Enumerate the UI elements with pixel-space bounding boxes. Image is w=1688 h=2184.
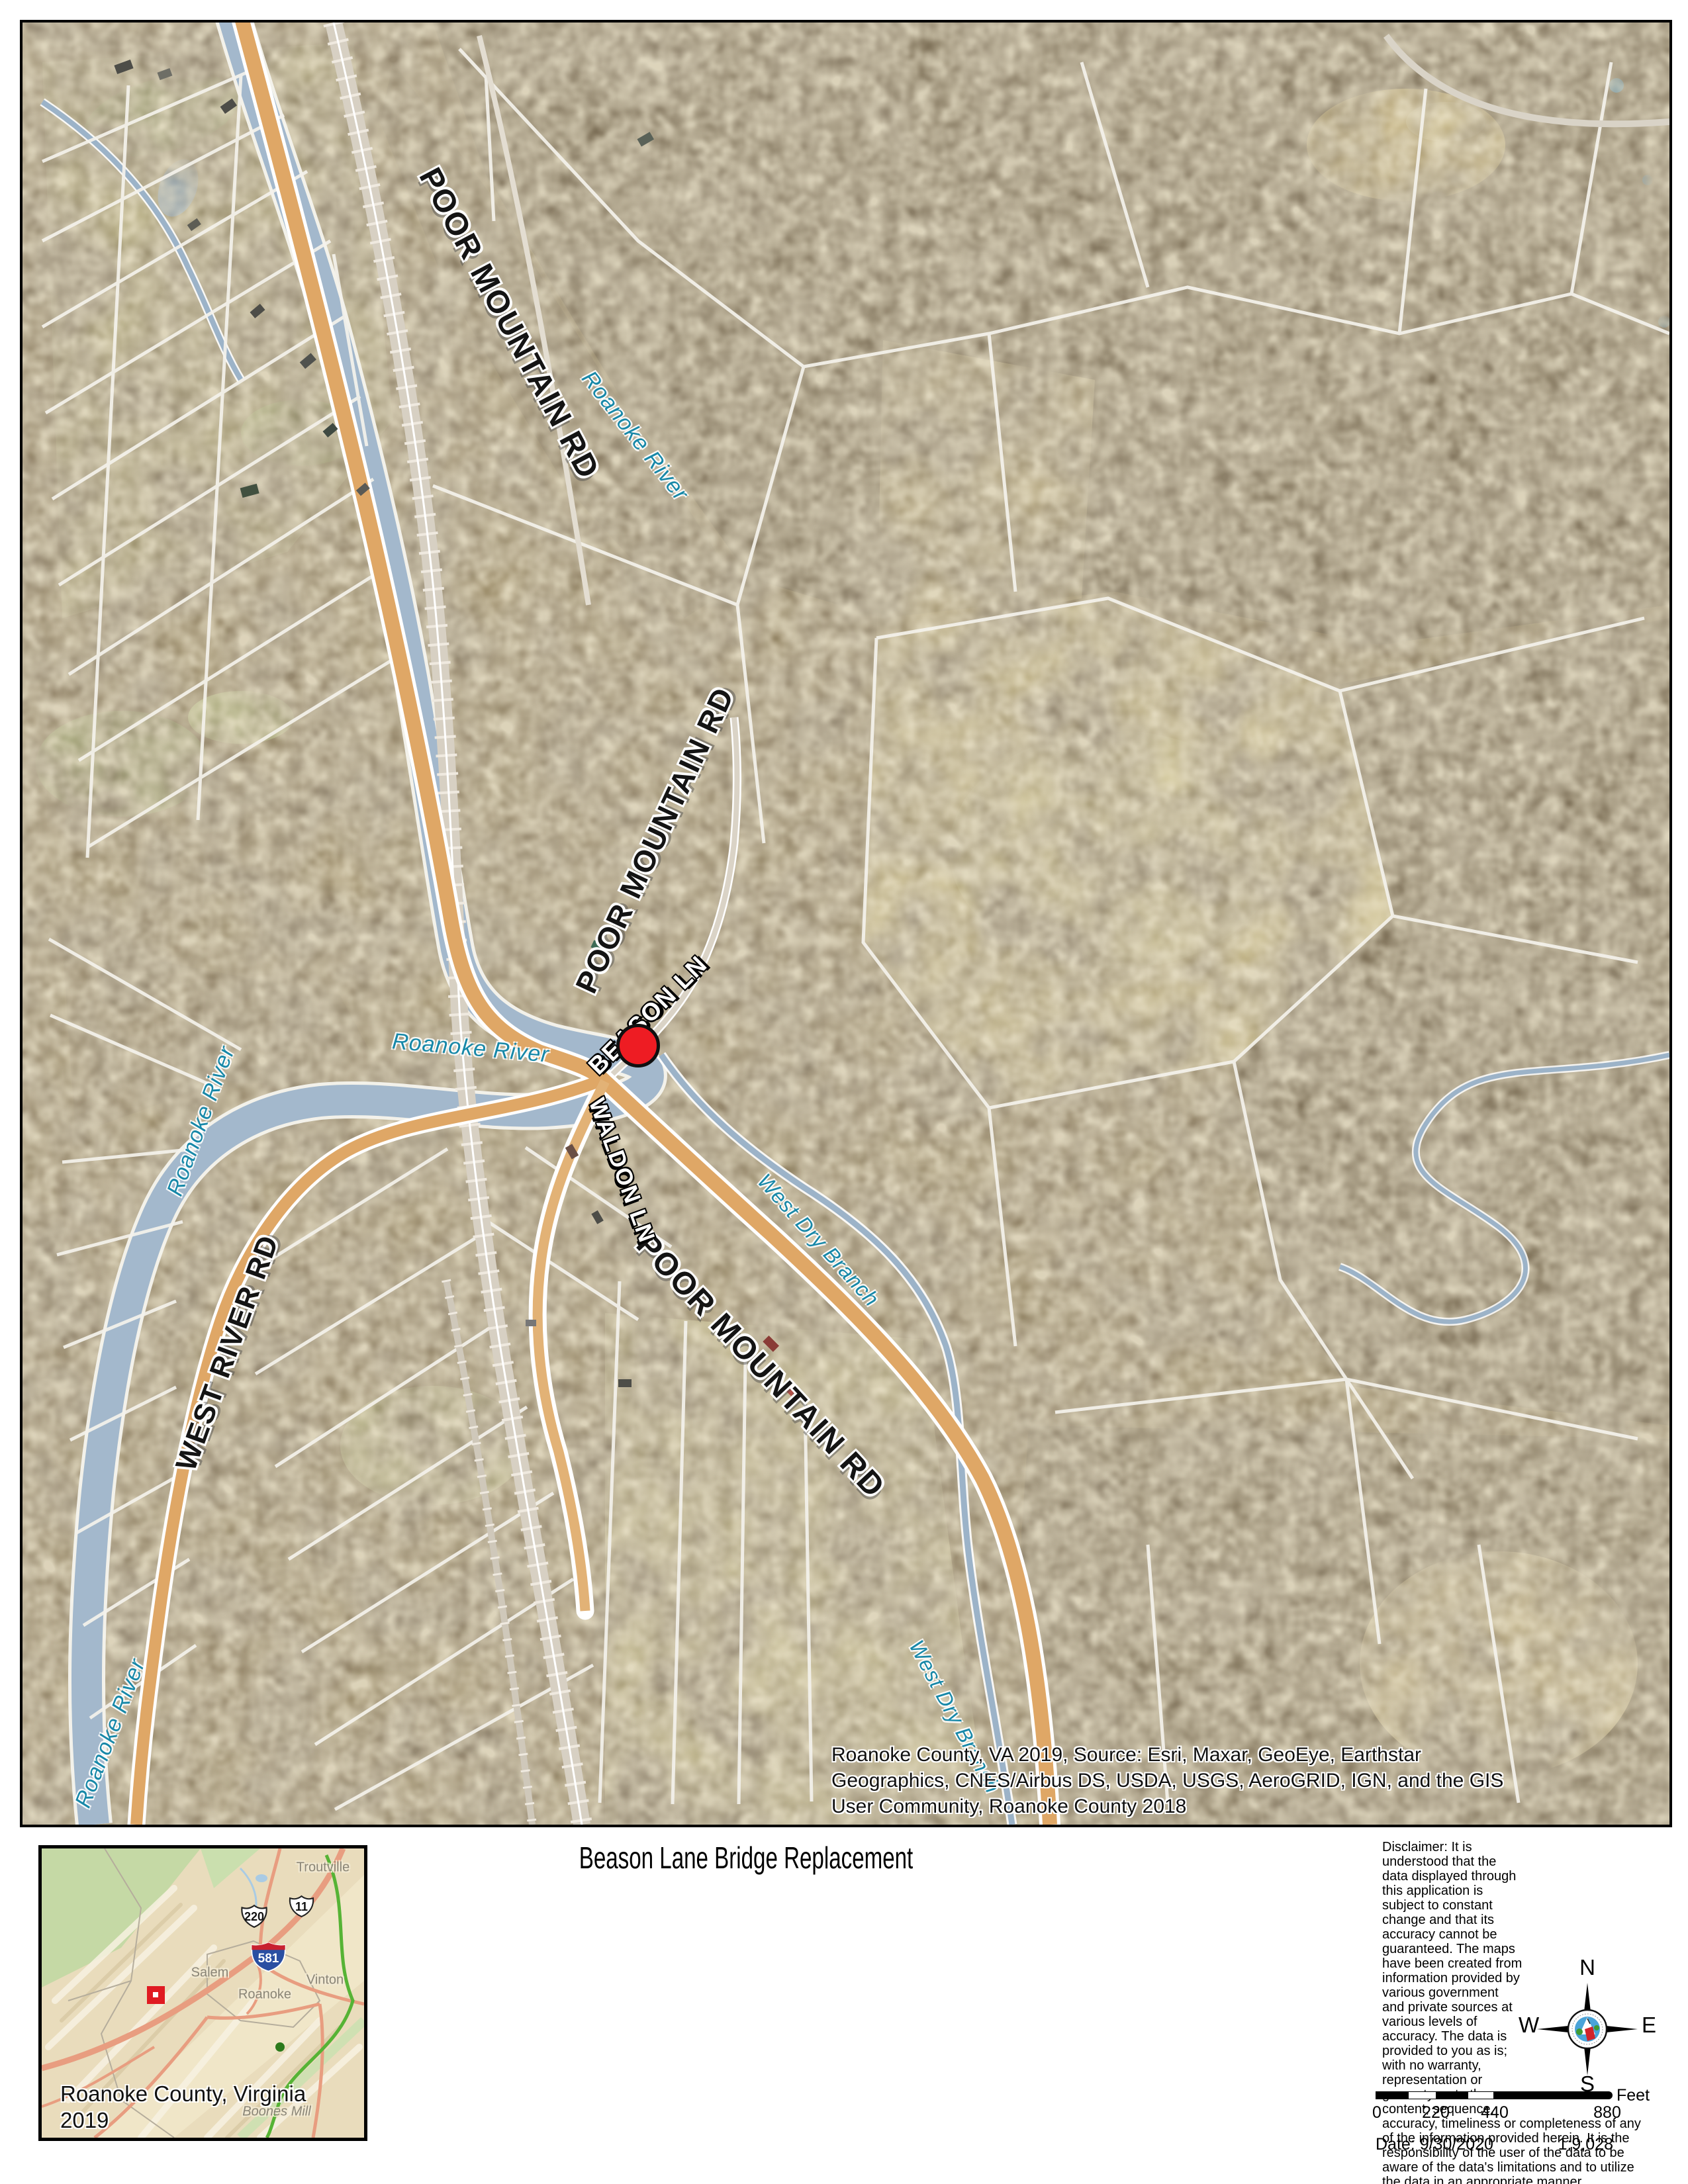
attribution-line: Geographics, CNES/Airbus DS, USDA, USGS,… — [831, 1768, 1503, 1794]
i-581-number: 581 — [258, 1952, 279, 1966]
scale-tick-0: 0 — [1372, 2103, 1382, 2122]
inset-caption-line1: Roanoke County, Virginia — [60, 2081, 306, 2107]
inset-place-roanoke: Roanoke — [238, 1987, 291, 2003]
compass-north-label: N — [1579, 1955, 1595, 1980]
bridge-location-marker — [616, 1024, 660, 1068]
scale-tick-880: 880 — [1593, 2103, 1621, 2122]
main-map: POOR MOUNTAIN RD POOR MOUNTAIN RD POOR M… — [20, 20, 1672, 1827]
inset-caption-line2: 2019 — [60, 2108, 109, 2133]
us-11-number: 11 — [295, 1900, 308, 1914]
scale-bar-unit: Feet — [1617, 2086, 1650, 2105]
attribution-line: Roanoke County, VA 2019, Source: Esri, M… — [831, 1742, 1503, 1768]
us-220-number: 220 — [244, 1910, 264, 1924]
us-220-shield: 220 — [235, 1904, 273, 1929]
locator-inset-map: Troutville Salem Roanoke Vinton Boones M… — [38, 1845, 367, 2141]
compass-rose: N S W E — [1524, 1960, 1651, 2090]
us-11-shield: 11 — [283, 1895, 320, 1918]
map-title: Beason Lane Bridge Replacement — [514, 1840, 978, 1876]
map-document-page: POOR MOUNTAIN RD POOR MOUNTAIN RD POOR M… — [0, 0, 1688, 2184]
i-581-shield: 581 — [246, 1941, 291, 1973]
map-title-text: Beason Lane Bridge Replacement — [579, 1840, 914, 1876]
compass-east-label: E — [1642, 2013, 1656, 2038]
map-date: Date: 9/30/2020 — [1376, 2135, 1493, 2154]
scale-tick-440: 440 — [1481, 2103, 1509, 2122]
map-scale-ratio: 1:9,028 — [1558, 2135, 1613, 2154]
inset-place-salem: Salem — [191, 1966, 229, 1981]
aerial-imagery — [23, 23, 1669, 1825]
inset-place-troutville: Troutville — [297, 1860, 350, 1876]
inset-place-vinton: Vinton — [306, 1973, 344, 1988]
attribution-line: User Community, Roanoke County 2018 — [831, 1794, 1503, 1819]
scale-tick-220: 220 — [1422, 2103, 1450, 2122]
scale-bar — [1376, 2091, 1613, 2099]
compass-west-label: W — [1519, 2013, 1539, 2038]
inset-location-marker — [147, 1986, 165, 2004]
imagery-attribution: Roanoke County, VA 2019, Source: Esri, M… — [831, 1742, 1503, 1819]
